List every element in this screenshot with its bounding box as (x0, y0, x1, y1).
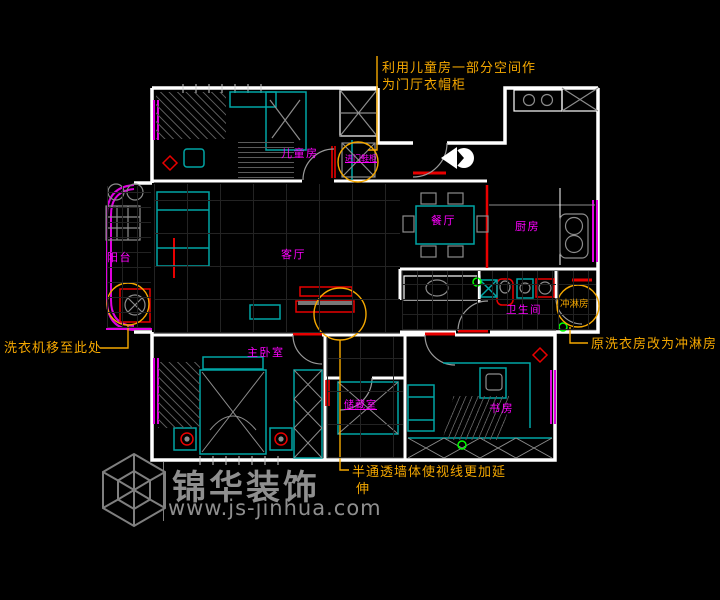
sink-bowl-icon (566, 218, 583, 235)
children-door-leaf (332, 146, 335, 178)
dining-chair (448, 246, 463, 257)
dining-chair (421, 193, 436, 204)
living-floor-tiles (154, 184, 400, 333)
room-label-shoe-cabinet: 进门鞋柜 (345, 155, 377, 163)
study-door-arc (425, 335, 455, 365)
dining-chair (421, 246, 436, 257)
children-chair (184, 149, 204, 167)
dining-chair (448, 193, 463, 204)
room-label-shower: 冲淋房 (560, 300, 589, 310)
annotation-shower: 原洗衣房改为冲淋房 (591, 336, 717, 353)
study-wardrobe-x (408, 438, 552, 458)
watermark-url: www.js-jinhua.com (168, 496, 382, 520)
children-bed-fold (270, 100, 300, 140)
watermark: 锦华装饰 www.js-jinhua.com (96, 452, 172, 534)
ceiling-diamond-icon (163, 156, 177, 170)
annotation-washer: 洗衣机移至此处 (4, 340, 102, 357)
wardrobe-x (294, 370, 322, 458)
annotation-wardrobe-line1: 利用儿童房一部分空间作 (382, 60, 536, 77)
watermark-divider (163, 462, 164, 521)
annotation-wardrobe: 利用儿童房一部分空间作 为门厅衣帽柜 (382, 60, 536, 94)
annotation-wall-line1: 半通透墙体使视线更加延 (352, 464, 506, 481)
desk-chair (486, 374, 502, 390)
study-armchair (408, 385, 434, 431)
children-bed-hatch (156, 92, 226, 139)
annotation-wall: 半通透墙体使视线更加延 伸 (352, 464, 506, 498)
bed-drape-lines (202, 372, 264, 452)
room-label-balcony: 阳台 (107, 252, 132, 263)
sink-bowl-icon (566, 236, 583, 253)
lamp-dot (279, 437, 283, 441)
room-label-kitchen: 厨房 (515, 221, 540, 232)
floorplan-canvas: 儿童房 进门鞋柜 餐厅 厨房 客厅 阳台 主卧室 储藏室 书房 卫生间 冲淋房 … (0, 0, 720, 600)
ceiling-diamond-icon (533, 348, 547, 362)
room-label-living: 客厅 (281, 249, 306, 260)
stove-burner-icon (524, 95, 535, 106)
room-label-storage: 储藏室 (344, 401, 377, 411)
jinhua-cube-logo-icon (96, 452, 172, 530)
corridor-floor-tiles (402, 271, 556, 330)
room-label-children: 儿童房 (281, 148, 319, 159)
room-label-dining: 餐厅 (431, 215, 456, 226)
room-label-master: 主卧室 (247, 347, 285, 358)
lamp-dot (185, 437, 189, 441)
annotation-wardrobe-line2: 为门厅衣帽柜 (382, 77, 536, 94)
room-label-study: 书房 (489, 403, 514, 414)
room-label-bathroom: 卫生间 (506, 305, 542, 316)
master-rug-hatch (158, 362, 200, 428)
children-desk (230, 92, 276, 107)
dining-chair (403, 216, 414, 232)
hall-closet-x (340, 90, 377, 136)
master-door-arc (293, 335, 322, 364)
hall-floor-tiles (327, 337, 403, 458)
stove-burner-icon (542, 95, 553, 106)
